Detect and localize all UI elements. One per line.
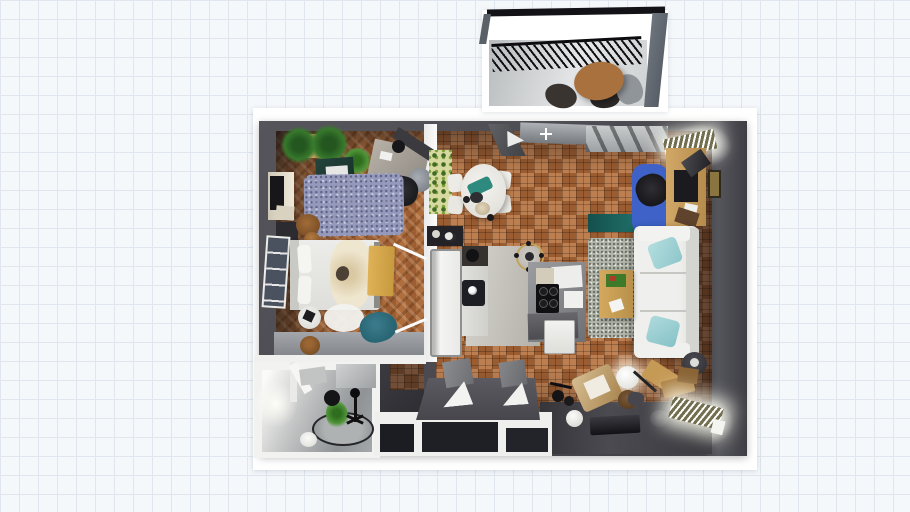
pillow-1[interactable] <box>297 245 312 274</box>
sofa-seam-2 <box>640 310 686 312</box>
table-plate-beige <box>475 202 490 215</box>
curtain-folds <box>586 126 668 152</box>
teal-bench[interactable] <box>588 214 635 232</box>
hook-ball-2[interactable] <box>564 396 574 406</box>
desk-knob[interactable] <box>392 140 405 153</box>
hook-ball-1[interactable] <box>552 390 564 402</box>
bath-lamp-head[interactable] <box>350 388 360 398</box>
cabinet-beige[interactable] <box>536 268 554 285</box>
burner-1 <box>539 287 548 296</box>
beige-shelf[interactable] <box>275 205 294 221</box>
pendant-dot-n <box>526 241 531 246</box>
floorplan-app-viewport <box>0 0 910 512</box>
burner-2 <box>549 287 558 296</box>
pendant-dot-w <box>514 253 519 258</box>
faucet <box>468 286 477 295</box>
side-table-dot <box>690 358 699 367</box>
tv-on-floor[interactable] <box>590 415 641 436</box>
floor-lamp-sphere[interactable] <box>616 366 639 389</box>
bar-bowl <box>444 232 456 242</box>
white-round-rug[interactable] <box>324 304 364 332</box>
table-dot-1 <box>487 214 494 221</box>
bedroom-window[interactable] <box>262 235 291 308</box>
bath-counter[interactable] <box>336 364 376 388</box>
cabinet-white-right[interactable] <box>564 291 583 308</box>
bath-side-table[interactable] <box>300 432 317 447</box>
bar-bottle <box>432 230 440 238</box>
entry-door-panel-1[interactable] <box>442 358 474 388</box>
table-dot-2 <box>463 196 470 203</box>
bottom-door-opening-2[interactable] <box>422 422 498 452</box>
bottom-door-opening-1[interactable] <box>380 424 414 452</box>
bed-bench[interactable] <box>367 246 395 297</box>
entry-door-panel-2[interactable] <box>498 359 527 387</box>
plant-box[interactable] <box>606 274 626 287</box>
basket-3[interactable] <box>300 336 320 355</box>
burner-3 <box>539 299 548 308</box>
burner-4 <box>549 299 558 308</box>
plant-box-flower <box>610 276 616 281</box>
pillow-2[interactable] <box>297 276 311 305</box>
kettle <box>466 249 479 262</box>
ceiling-marker <box>540 128 552 140</box>
wood-piece[interactable] <box>677 367 699 385</box>
bath-basin[interactable] <box>324 390 340 406</box>
pendant-dot-e <box>539 253 544 258</box>
entry-parquet-shade <box>390 360 424 390</box>
sofa-seam-1 <box>640 272 686 274</box>
gray-pouf[interactable] <box>650 410 669 427</box>
dishwasher[interactable] <box>544 320 575 354</box>
bottom-door-opening-3[interactable] <box>506 428 548 452</box>
sofa-back <box>686 228 699 356</box>
fridge[interactable] <box>430 249 462 357</box>
wall-picture[interactable] <box>708 170 721 198</box>
floorplan-render[interactable] <box>0 0 910 512</box>
pendant-center <box>525 252 534 261</box>
sphere-lamp-2[interactable] <box>566 410 583 427</box>
